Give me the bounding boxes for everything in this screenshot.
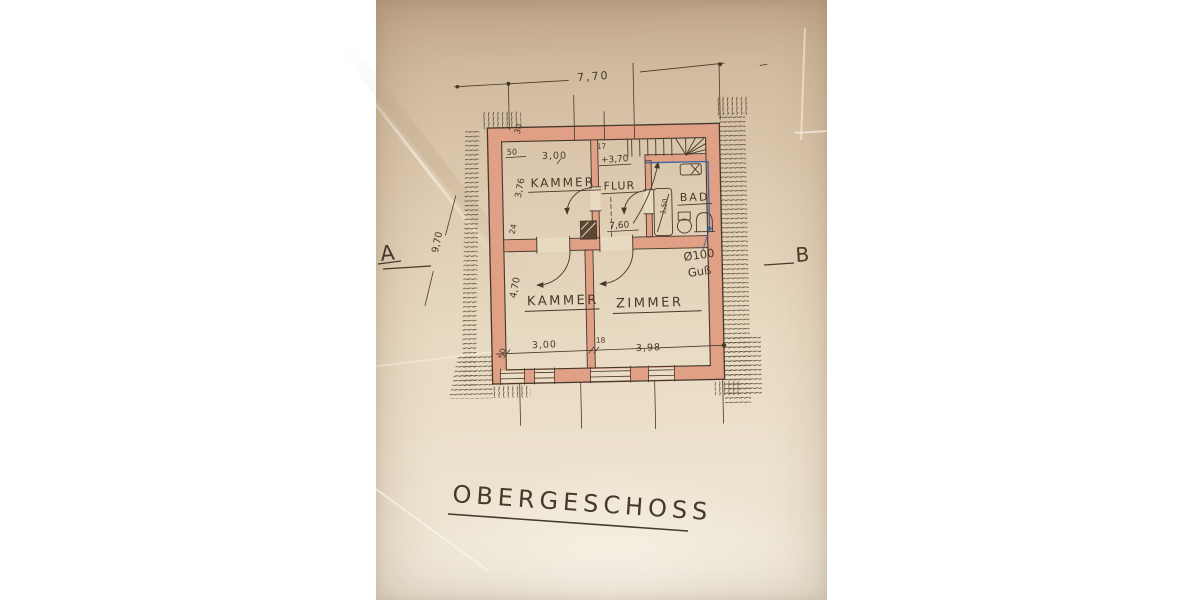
room-label-kammer-top: KAMMER: [530, 175, 595, 190]
dim-kammer-width: 3,00: [542, 150, 567, 162]
room-label-zimmer: ZIMMER: [616, 295, 684, 311]
floorplan-photo: 7,70 30 50 3,00 3,76 24 17 +3,70 7,60 1,…: [376, 0, 827, 600]
dim-top-width: 7,70: [577, 69, 610, 84]
floorplan-drawing: 7,70 30 50 3,00 3,76 24 17 +3,70 7,60 1,…: [376, 0, 827, 600]
page-background: { "colors": { "paper_top": "#c4a98e", "p…: [0, 0, 1200, 600]
dim-level-mark: +3,70: [601, 154, 629, 166]
dim-offset-50-bottom: 50: [497, 348, 507, 359]
page-title: OBERGESCHOSS: [452, 480, 714, 526]
section-marker-b: B: [795, 242, 810, 267]
room-label-kammer-bottom: KAMMER: [527, 293, 599, 310]
room-label-bad: BAD: [680, 191, 710, 205]
dim-offset-50-top: 50: [507, 148, 517, 157]
dim-stair-wall-17: 17: [597, 142, 607, 151]
dim-lower-depth: 4,70: [508, 276, 523, 299]
dim-bath-width: 1,50: [659, 198, 669, 215]
room-label-flur: FLUR: [603, 179, 635, 193]
dim-zimmer-width: 3,98: [636, 342, 662, 354]
plumbing-annotation: Ø100 Guß: [646, 161, 716, 280]
toilet-icon: [677, 219, 691, 233]
dim-kammer-depth: 3,76: [514, 177, 528, 199]
dim-kammer2-width: 3,00: [532, 339, 558, 351]
dim-flur-length: 7,60: [609, 220, 630, 231]
drawing-title: OBERGESCHOSS: [448, 480, 713, 531]
chimney: [580, 221, 596, 239]
dim-wall-24: 24: [508, 223, 519, 235]
dim-left-total: 9,70: [430, 231, 445, 254]
dim-mid-wall-18: 18: [596, 336, 606, 345]
